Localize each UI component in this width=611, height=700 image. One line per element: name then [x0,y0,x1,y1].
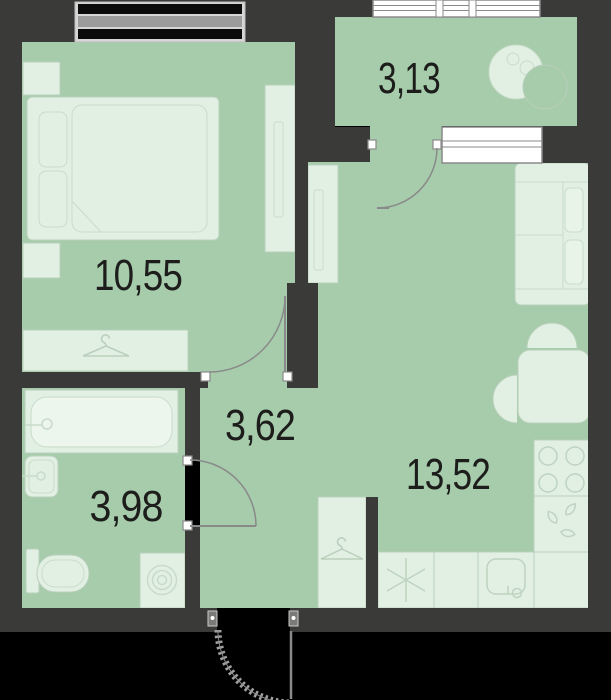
washing-machine [140,553,185,608]
wall-right [588,0,611,632]
kitchen-living-area-label: 13,52 [406,450,490,499]
wall-bottom-left [0,608,217,632]
bed [27,97,219,240]
wall-bottom-right [290,608,611,632]
sofa-cushion [565,188,583,232]
floor-plan-canvas: 10,55 3,13 3,62 3,98 13,52 [0,0,611,700]
door-jamb [433,140,441,149]
dining-table [518,350,590,423]
wall-left [0,0,22,632]
toilet-bowl [37,555,89,592]
floor-plan: 10,55 3,13 3,62 3,98 13,52 [0,0,611,700]
entrance-doorway-gap [217,608,290,632]
door-jamb [283,372,292,381]
bedroom-tv-stand [265,85,295,252]
nightstand-bottom [23,243,60,278]
hallway-area-label: 3,62 [225,401,295,450]
wall-bedroom-bottom [22,372,208,388]
bedroom-closet [23,330,188,371]
door-jamb [368,140,376,149]
wall-loggia-top-left [335,0,373,17]
wall-bedroom-living [295,160,308,285]
wall-bathroom-top [185,388,200,460]
bedroom-doorway-floor [208,372,287,388]
sofa-cushion [565,240,583,284]
bedroom-area-label: 10,55 [94,251,182,300]
wall-bedroom-loggia [295,0,335,127]
kitchen-loggia-window [442,127,542,163]
wall-bathroom-bottom [185,527,200,608]
loggia-round-item-overlap [523,65,567,109]
hall-wardrobe [318,497,366,608]
kitchen-mid-unit [434,552,478,608]
loggia-railing [373,0,540,17]
nightstand-top [23,62,60,95]
kitchen-drawer-unit [534,496,590,552]
bathroom-area-label: 3,98 [90,482,163,531]
kitchen-corner-unit [534,552,590,608]
wall-loggia-living-right [542,126,611,163]
loggia-area-label: 3,13 [378,54,440,103]
loggia-doorway-floor [370,126,442,163]
wall-loggia-living-left [295,127,370,162]
door-jamb [201,372,210,381]
wall-hall-kitchen [366,497,378,608]
bedroom-window [75,2,245,42]
